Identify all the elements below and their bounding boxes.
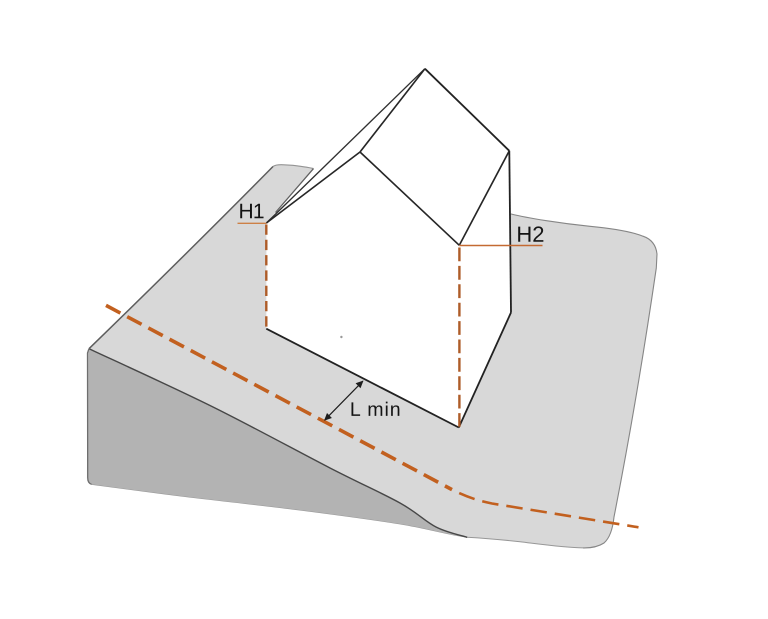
svg-text:L min: L min bbox=[350, 399, 402, 421]
svg-text:H1: H1 bbox=[238, 200, 263, 223]
svg-text:H2: H2 bbox=[516, 222, 544, 247]
